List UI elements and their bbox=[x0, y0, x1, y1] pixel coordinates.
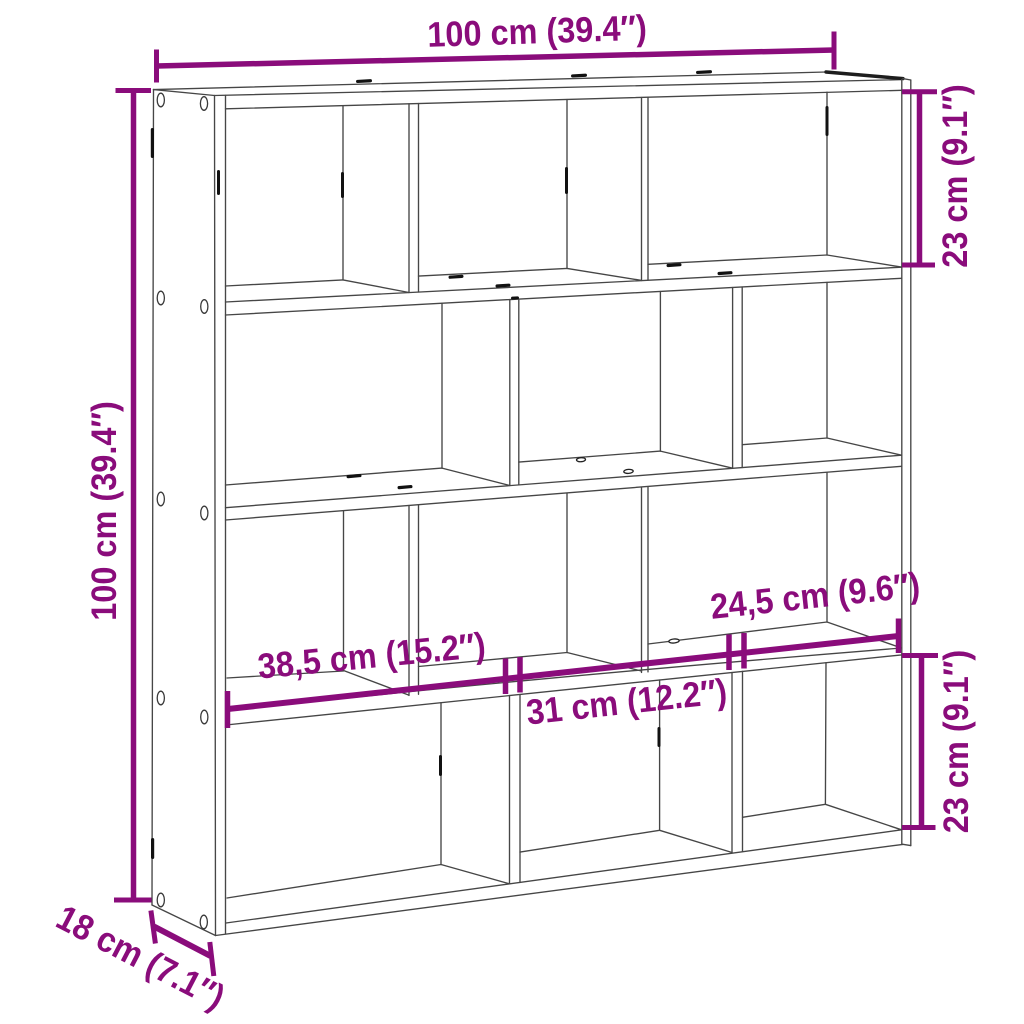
svg-text:24,5 cm (9.6″): 24,5 cm (9.6″) bbox=[708, 565, 922, 627]
svg-text:100 cm (39.4″): 100 cm (39.4″) bbox=[84, 401, 124, 621]
svg-text:23 cm (9.1″): 23 cm (9.1″) bbox=[935, 84, 975, 267]
svg-text:23 cm (9.1″): 23 cm (9.1″) bbox=[936, 650, 976, 833]
svg-text:31 cm (12.2″): 31 cm (12.2″) bbox=[524, 672, 729, 733]
svg-text:100 cm (39.4″): 100 cm (39.4″) bbox=[427, 8, 648, 55]
svg-text:38,5 cm (15.2″): 38,5 cm (15.2″) bbox=[256, 626, 487, 687]
